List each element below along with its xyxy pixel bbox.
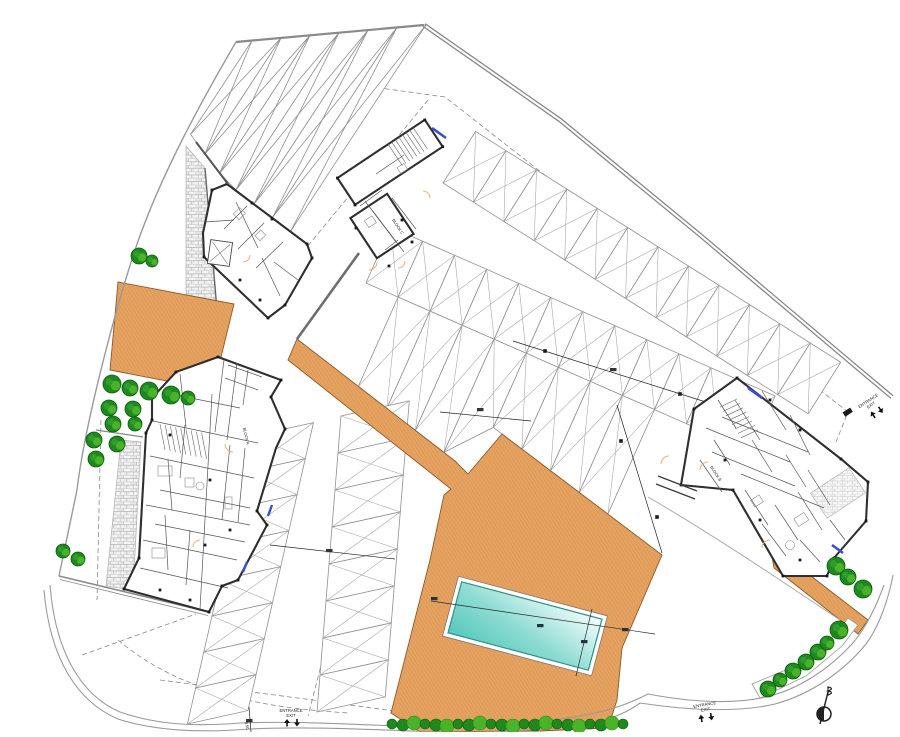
svg-text:EXIT: EXIT	[286, 713, 296, 718]
